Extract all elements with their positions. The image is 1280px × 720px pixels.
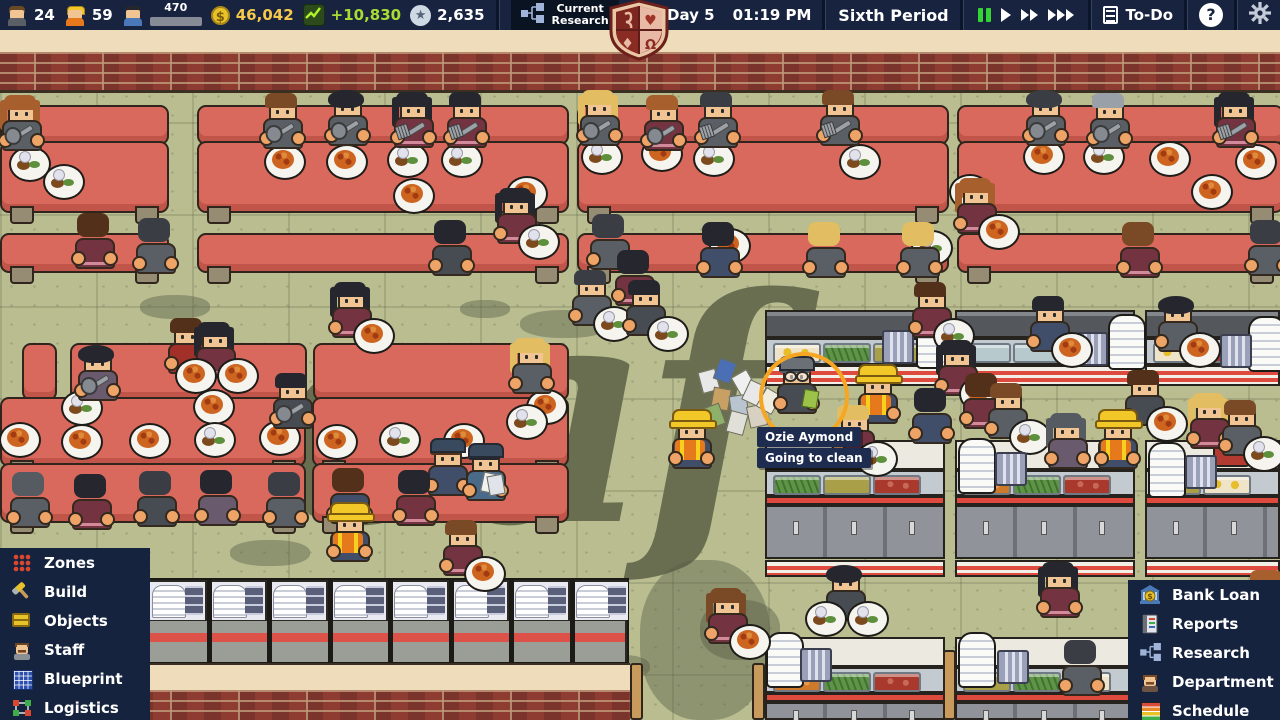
build-menu-item-label: Zones: [44, 554, 95, 572]
utensil-panel: [366, 586, 384, 615]
counter-divider: [570, 580, 575, 662]
spaghetti-plate: [324, 430, 346, 449]
eye: [441, 457, 444, 461]
character-hand: [834, 260, 849, 275]
character-hair: [1250, 220, 1280, 244]
points-value: 2,635: [437, 6, 484, 24]
game-clock: 01:19 PM: [724, 6, 821, 24]
eye: [1203, 410, 1206, 414]
income-stat[interactable]: +10,830: [303, 4, 401, 26]
objects-icon: [12, 611, 32, 631]
utensil-panel: [548, 586, 566, 615]
bank-loan-icon: $: [1140, 585, 1160, 605]
plate-stack: [958, 632, 996, 688]
student-character[interactable]: [497, 188, 537, 254]
character-hair: [914, 282, 946, 297]
student-character[interactable]: [75, 213, 115, 279]
character-hand: [611, 288, 626, 303]
dish-stack: [576, 585, 610, 618]
workers-count: 59: [92, 6, 113, 24]
serving-station: [765, 693, 945, 702]
character-hand: [1076, 451, 1091, 466]
spaghetti-plate: [1187, 338, 1209, 357]
character-hand: [358, 544, 373, 559]
divider: [496, 0, 500, 30]
character-hair: [74, 474, 106, 498]
teachers-count: 24: [34, 6, 55, 24]
question-mark-icon: ?: [1199, 3, 1223, 27]
divider: [1234, 0, 1238, 30]
dish-stack: [394, 585, 428, 618]
management-menu-item-schedule[interactable]: Schedule: [1128, 696, 1280, 720]
student-character[interactable]: [72, 474, 112, 540]
food-plate: [194, 422, 236, 458]
student-character[interactable]: [1090, 93, 1130, 159]
character-hair: [1224, 400, 1256, 415]
eye: [353, 523, 356, 527]
spaghetti-plate: [201, 395, 223, 414]
help-button[interactable]: ?: [1190, 3, 1232, 27]
meal-plate: [202, 428, 224, 447]
utensil-tray: [882, 330, 914, 364]
graph-icon: [303, 4, 325, 26]
character-hand: [103, 251, 118, 266]
student-character[interactable]: [644, 95, 684, 161]
top-bar: 24 59 470 $ 46,042: [0, 0, 1280, 30]
character-hand: [728, 260, 743, 275]
food: [1253, 441, 1265, 453]
student-character[interactable]: [1158, 296, 1198, 362]
character-hair: [434, 220, 466, 244]
character-tooltip-name: Ozie Aymond: [757, 427, 861, 447]
spaghetti-plate: [1154, 412, 1176, 431]
logistics-icon: [12, 698, 32, 718]
cabinet-handle: [793, 521, 799, 535]
cafeteria-table: [197, 105, 569, 145]
cafeteria-table: [577, 105, 949, 145]
meal-plate: [387, 428, 409, 447]
settings-button[interactable]: [1240, 2, 1280, 28]
management-menu-item-research[interactable]: Research: [1128, 638, 1280, 667]
dish-counter-module: [149, 582, 205, 620]
management-menu-item-department[interactable]: Department: [1128, 667, 1280, 696]
student-character[interactable]: [806, 222, 846, 288]
character-hair: [138, 218, 170, 242]
divider: [960, 0, 964, 30]
student-character[interactable]: [957, 178, 997, 244]
plate-stack: [766, 632, 804, 688]
student-character[interactable]: [137, 471, 177, 537]
management-menu-item-label: Department: [1172, 673, 1274, 691]
build-menu-item-label: Build: [44, 583, 87, 601]
management-menu-item-reports[interactable]: Reports: [1128, 609, 1280, 638]
character-hand: [668, 451, 683, 466]
cabinet-handle: [1231, 521, 1237, 535]
student-character[interactable]: [572, 270, 612, 336]
current-research-button[interactable]: Current Research: [511, 0, 619, 30]
eye: [479, 462, 482, 466]
teachers-stat[interactable]: 24: [6, 4, 55, 26]
student-character[interactable]: [1062, 640, 1102, 706]
food-plate: [464, 556, 506, 592]
eye: [1239, 109, 1242, 113]
eye: [1053, 579, 1056, 583]
character-tooltip-status: Going to clean: [757, 448, 871, 468]
character-hand: [908, 426, 923, 441]
hard-hat: [327, 513, 375, 522]
character-hair: [574, 270, 606, 285]
student-character[interactable]: [78, 345, 118, 411]
food-plate: [1149, 141, 1191, 177]
student-character[interactable]: [626, 280, 666, 346]
student-character[interactable]: [1030, 296, 1070, 362]
cabinet-handle: [851, 521, 857, 535]
student-character[interactable]: [273, 373, 313, 439]
student-character[interactable]: [580, 90, 620, 156]
character-hand: [262, 510, 277, 525]
food-plate: [0, 422, 41, 458]
build-menu-item-zones[interactable]: Zones: [0, 548, 150, 577]
eye: [649, 297, 652, 301]
character-hair: [445, 520, 477, 535]
character-hand: [953, 216, 968, 231]
character-hand: [622, 318, 637, 333]
management-menu-item-label: Schedule: [1172, 702, 1249, 720]
student-character[interactable]: [136, 218, 176, 284]
character-hair: [1050, 413, 1082, 428]
eye: [951, 357, 954, 361]
character-hand: [940, 426, 955, 441]
student-character[interactable]: [328, 90, 368, 156]
character-hair: [808, 222, 840, 246]
svg-text:♦: ♦: [621, 36, 634, 52]
food-plate: [518, 224, 560, 260]
eye: [1061, 430, 1064, 434]
cabinet-handle: [909, 710, 915, 720]
dish-stack: [213, 585, 247, 618]
student-character[interactable]: [196, 322, 236, 388]
student-character[interactable]: [266, 472, 306, 538]
food: [399, 437, 410, 444]
eye: [417, 109, 420, 113]
eye: [843, 107, 846, 111]
student-character[interactable]: [1222, 400, 1262, 466]
food-plate: [729, 624, 771, 660]
counter-divider: [207, 580, 212, 662]
worker-character[interactable]: [1098, 413, 1138, 479]
food: [825, 616, 836, 623]
character-hand: [1044, 451, 1059, 466]
character-hair: [139, 471, 171, 495]
eye: [980, 195, 983, 199]
student-character[interactable]: [10, 472, 50, 538]
student-character[interactable]: [263, 93, 303, 159]
research-icon: [1140, 643, 1160, 663]
eye: [721, 109, 724, 113]
eye: [451, 457, 454, 461]
play-button[interactable]: [1001, 8, 1011, 22]
spaghetti-plate: [361, 324, 383, 343]
food: [657, 321, 669, 333]
meal-plate: [1251, 442, 1273, 461]
staff-icon: [12, 640, 32, 660]
character-hair: [328, 90, 364, 108]
character-hand: [1154, 334, 1169, 349]
student-character[interactable]: [826, 565, 866, 631]
divider: [1088, 0, 1092, 30]
income-value: +10,830: [331, 6, 401, 24]
food-plate: [43, 164, 85, 200]
utensil-panel: [185, 586, 203, 615]
character-hand: [586, 252, 601, 267]
worker-icon: [64, 4, 86, 26]
student-character[interactable]: [2, 95, 42, 161]
food-plate: [1179, 332, 1221, 368]
build-menu: ZonesBuildObjectsStaffBlueprintLogistics: [0, 548, 150, 720]
todo-list-icon: [1103, 6, 1118, 24]
character-hand: [1218, 438, 1233, 453]
divider: [822, 0, 826, 30]
character-hair: [332, 468, 364, 492]
dish-stack: [152, 585, 186, 618]
worker-character[interactable]: [672, 413, 712, 479]
meal-plate: [601, 312, 623, 331]
serving-station: [765, 702, 945, 720]
meal-plate: [526, 230, 548, 249]
cafeteria-table: [22, 343, 57, 401]
student-character[interactable]: [443, 520, 483, 586]
utensil-head: [447, 123, 464, 140]
pause-button[interactable]: [978, 8, 991, 22]
utensil-head: [1216, 123, 1233, 140]
build-menu-item-blueprint[interactable]: Blueprint: [0, 664, 150, 693]
character-hand: [704, 626, 719, 641]
dish-counter-module: [391, 582, 447, 620]
serving-station: [955, 496, 1135, 505]
food-tray: [823, 475, 871, 495]
food: [876, 456, 887, 463]
character-hair: [200, 470, 232, 494]
student-character[interactable]: [332, 282, 372, 348]
student-character[interactable]: [466, 445, 506, 511]
eye: [209, 339, 212, 343]
serving-station: [765, 470, 945, 496]
eye: [181, 335, 184, 339]
character-hair: [914, 388, 946, 412]
character-hair: [12, 472, 44, 496]
spaghetti-plate: [737, 630, 759, 649]
door-post: [943, 650, 956, 720]
character-hand: [1036, 600, 1051, 615]
eye: [1111, 430, 1114, 434]
dish-stack: [334, 585, 368, 618]
dish-stack: [273, 585, 307, 618]
eye: [1071, 430, 1074, 434]
character-hair: [628, 280, 660, 295]
divider: [1184, 0, 1188, 30]
character-hair: [1158, 296, 1194, 314]
character-hand: [38, 510, 53, 525]
food: [204, 427, 216, 439]
meal-plate: [813, 607, 835, 626]
food: [953, 333, 964, 340]
counter-band: [149, 642, 625, 662]
gear-icon: [1249, 2, 1271, 28]
character-hand: [1116, 260, 1131, 275]
money-value: 46,042: [236, 6, 294, 24]
eye: [407, 109, 410, 113]
student-character[interactable]: [1040, 562, 1080, 628]
character-hand: [1090, 678, 1105, 693]
character-hair: [592, 214, 624, 238]
food-plate: [1146, 406, 1188, 442]
student-character[interactable]: [198, 470, 238, 536]
build-menu-item-build[interactable]: Build: [0, 577, 150, 606]
food-plate: [379, 422, 421, 458]
character-hair: [396, 92, 428, 107]
character-hand: [328, 320, 343, 335]
student-character[interactable]: [447, 92, 487, 158]
management-menu-item-label: Research: [1172, 644, 1250, 662]
eye: [1148, 387, 1151, 391]
student-character[interactable]: [1248, 220, 1280, 286]
utensil-head: [820, 121, 837, 138]
student-character[interactable]: [708, 588, 748, 654]
spaghetti-plate: [401, 184, 423, 203]
student-character[interactable]: [912, 282, 952, 348]
eye: [881, 385, 884, 389]
serving-station: [1145, 505, 1280, 559]
food-plate: [217, 358, 259, 394]
cabinet-handle: [793, 710, 799, 720]
food: [538, 239, 549, 246]
character-hand: [1186, 431, 1201, 446]
door-post: [752, 663, 765, 720]
character-hand: [68, 512, 83, 527]
worker-character[interactable]: [330, 506, 370, 572]
star-icon: ★: [410, 5, 431, 26]
period-label: Sixth Period: [828, 6, 958, 25]
door-post: [630, 663, 643, 720]
management-menu-item-label: Reports: [1172, 615, 1238, 633]
cabinet-handle: [851, 710, 857, 720]
student-character[interactable]: [820, 90, 860, 156]
plate-stack: [1148, 442, 1186, 498]
serving-station: [955, 693, 1135, 702]
eye: [276, 110, 279, 114]
plate-stack: [1108, 314, 1146, 370]
student-character[interactable]: [698, 92, 738, 158]
student-character[interactable]: [700, 222, 740, 288]
character-hand: [959, 411, 974, 426]
student-character[interactable]: [1048, 413, 1088, 479]
food: [867, 616, 878, 623]
student-character[interactable]: [988, 383, 1028, 449]
eye: [848, 422, 851, 426]
student-character[interactable]: [1026, 90, 1066, 156]
character-hair: [1026, 90, 1062, 108]
counter-band: [149, 621, 625, 633]
points-stat[interactable]: ★ 2,635: [410, 5, 484, 26]
character-hair: [1092, 93, 1124, 108]
workers-stat[interactable]: 59: [64, 4, 113, 26]
fast-forward-button[interactable]: [1021, 9, 1038, 21]
eye: [695, 430, 698, 434]
eye: [721, 605, 724, 609]
cabinet-handle: [1173, 521, 1179, 535]
student-character[interactable]: [394, 92, 434, 158]
character-hair: [1218, 92, 1250, 107]
food-plate: [1243, 436, 1280, 472]
food-tray: [873, 672, 921, 692]
papers: [486, 474, 505, 496]
character-hand: [165, 509, 180, 524]
student-character[interactable]: [396, 470, 436, 536]
eye: [1235, 417, 1238, 421]
student-character[interactable]: [1216, 92, 1256, 158]
students-stat[interactable]: 470: [122, 2, 202, 28]
cabinet-handle: [1041, 710, 1047, 720]
utensil-tray: [1185, 455, 1217, 489]
character-hair: [4, 95, 36, 110]
character-hair: [902, 222, 934, 246]
student-character[interactable]: [512, 338, 552, 404]
student-character[interactable]: [912, 388, 952, 454]
student-character[interactable]: [1120, 222, 1160, 288]
character-hand: [908, 320, 923, 335]
eye: [925, 299, 928, 303]
character-hand: [696, 260, 711, 275]
table-leg: [10, 206, 34, 224]
student-character[interactable]: [432, 220, 472, 286]
top-bar-right: Y7Day 5 01:19 PM Sixth Period To-Do ?: [625, 0, 1280, 30]
eye: [510, 205, 513, 209]
meal-plate: [51, 170, 73, 189]
table-leg: [207, 266, 231, 284]
build-menu-item-logistics[interactable]: Logistics: [0, 693, 150, 720]
hard-hat: [855, 375, 903, 384]
character-hand: [568, 308, 583, 323]
hard-hat: [669, 420, 717, 429]
todo-button[interactable]: To-Do: [1094, 6, 1182, 24]
food-plate: [316, 424, 358, 460]
spaghetti-plate: [137, 429, 159, 448]
character-hair: [617, 250, 649, 274]
table-leg: [207, 206, 231, 224]
character-hair: [334, 282, 366, 297]
eye: [1113, 110, 1116, 114]
floor-stain: [140, 295, 210, 319]
build-menu-item-objects[interactable]: Objects: [0, 606, 150, 635]
money-stat[interactable]: $ 46,042: [211, 6, 294, 25]
svg-text:Ω: Ω: [645, 38, 656, 53]
character-hair: [398, 470, 430, 494]
serving-station: [765, 496, 945, 505]
build-menu-item-staff[interactable]: Staff: [0, 635, 150, 664]
table-leg: [535, 516, 559, 534]
food: [667, 331, 678, 338]
eye: [639, 297, 642, 301]
character-hair: [1032, 296, 1064, 311]
spaghetti-plate: [472, 562, 494, 581]
student-character[interactable]: [900, 222, 940, 288]
reports-icon: [1140, 614, 1160, 634]
food-tray: [773, 475, 821, 495]
cabinet-handle: [983, 521, 989, 535]
management-menu-item-bank-loan[interactable]: $Bank Loan: [1128, 580, 1280, 609]
fastest-forward-button[interactable]: [1048, 9, 1074, 21]
cabinet-handle: [909, 521, 915, 535]
